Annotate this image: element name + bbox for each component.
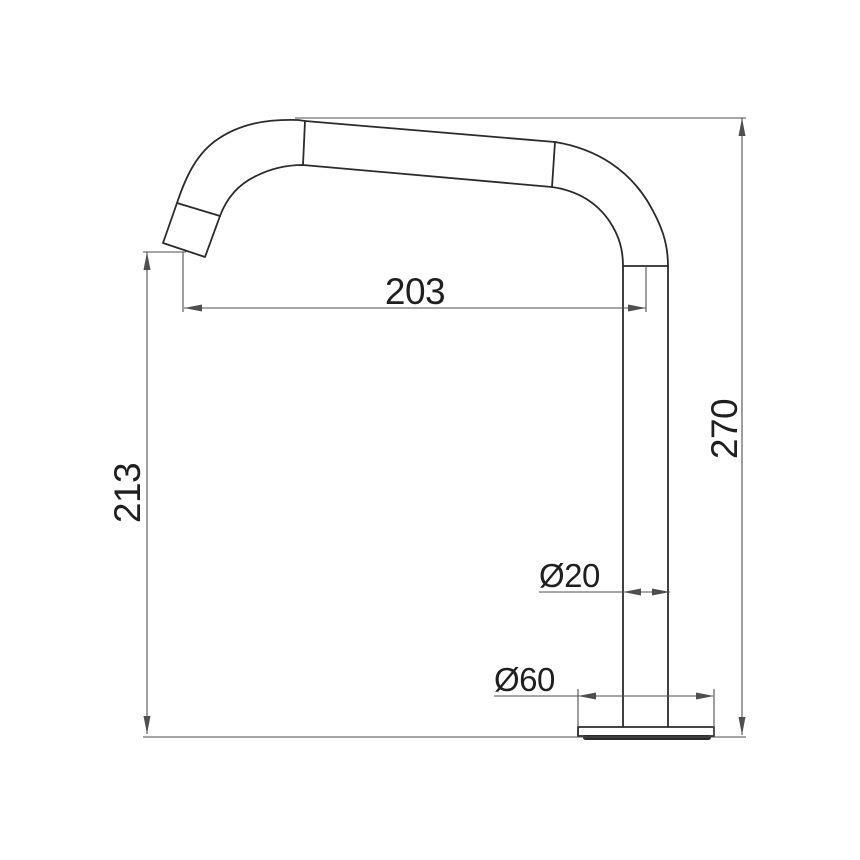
label-spout-height-213: 213 [107,463,148,523]
arrow-d20-left [623,589,641,596]
arrow-270-down [739,717,746,735]
arrow-203-right [628,305,646,312]
arrowheads-group [144,118,746,735]
spout-nozzle-tip [163,203,220,257]
spout-outline-group [163,120,714,736]
arrow-213-down [144,716,151,734]
technical-drawing-page: 203 213 270 Ø20 Ø60 [0,0,860,860]
base-flange [578,727,714,736]
arrow-203-left [184,305,202,312]
arrow-d60-right [696,693,714,700]
spout-inner-contour [220,165,623,727]
label-overall-height-270: 270 [704,399,745,459]
label-reach-203: 203 [385,271,445,312]
arrow-d60-left [578,693,596,700]
dimension-lines-group [143,118,746,737]
spout-joint-line-right [552,142,555,187]
arrow-213-up [144,252,151,270]
spout-outer-contour [177,120,668,727]
arrow-270-up [739,118,746,136]
spout-joint-line-apex [303,121,305,165]
faucet-spout-dimension-drawing: 203 213 270 Ø20 Ø60 [0,0,860,860]
label-base-diameter-60: Ø60 [494,661,555,698]
label-pipe-diameter-20: Ø20 [539,557,600,594]
